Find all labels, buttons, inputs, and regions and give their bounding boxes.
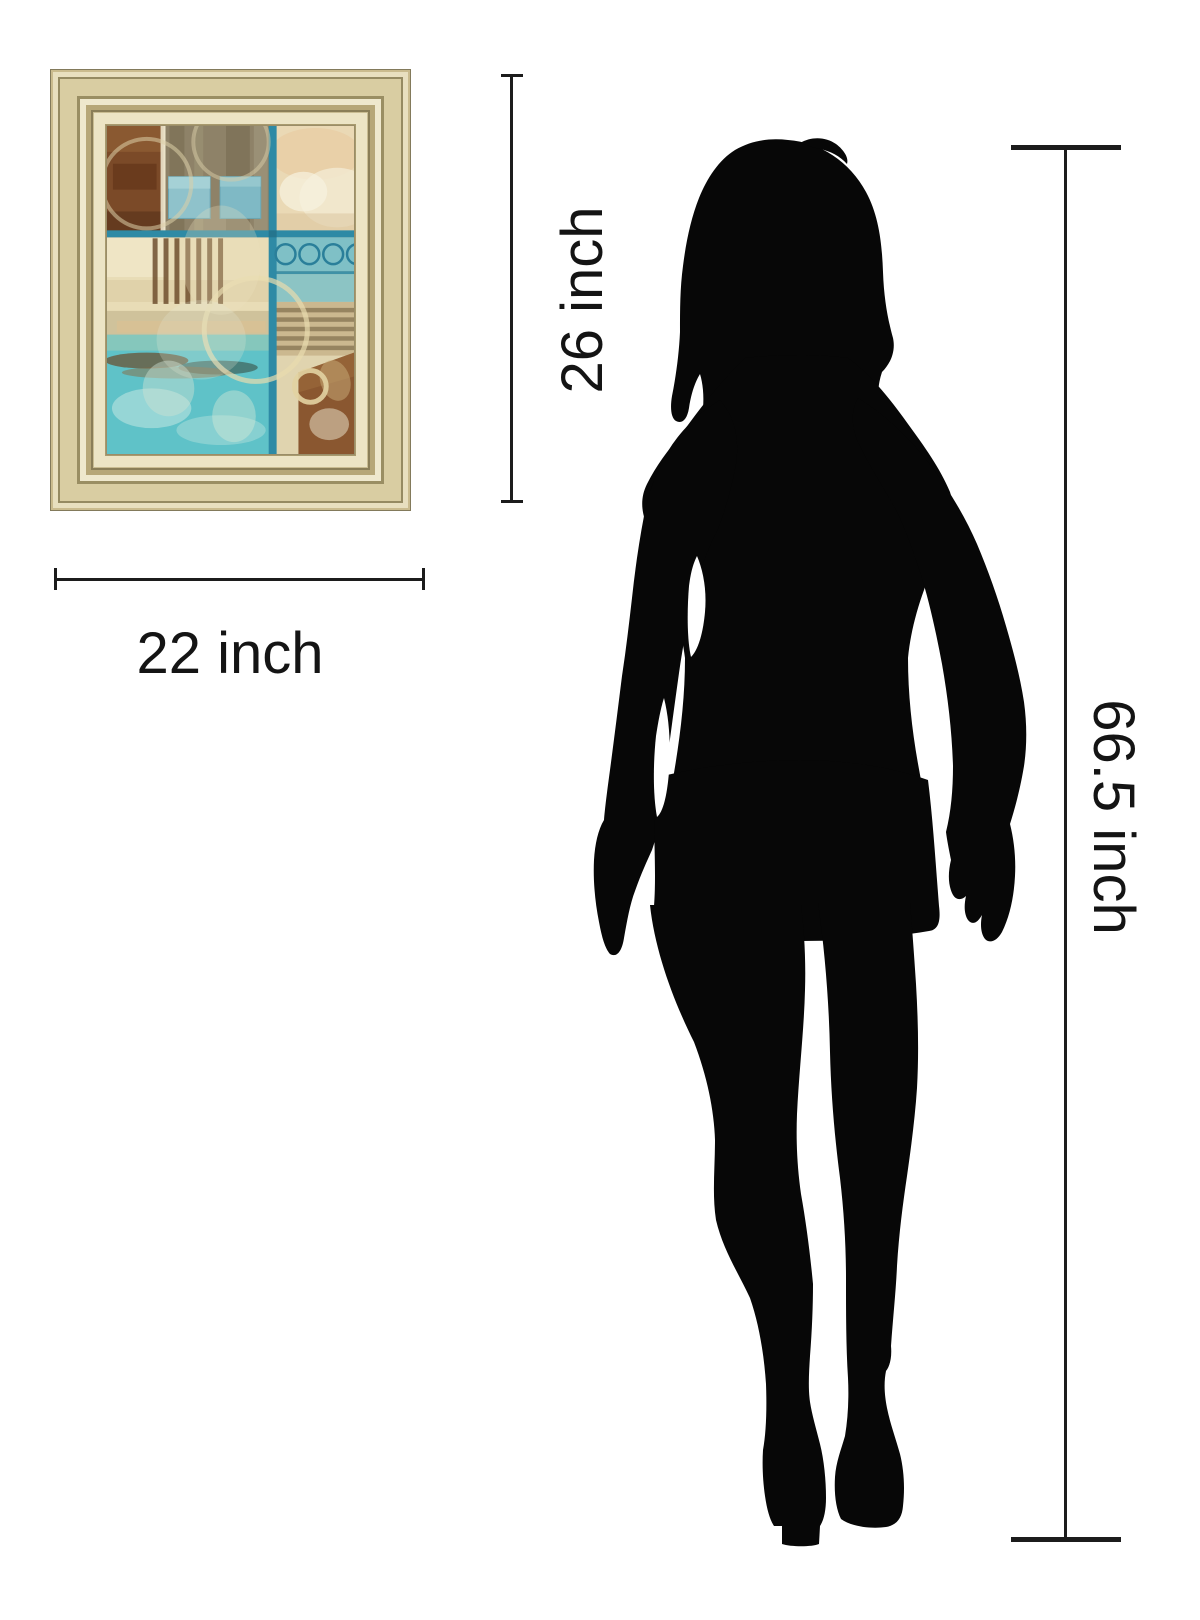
figure-height-cap-bottom — [1011, 1537, 1121, 1542]
silhouette-shapes — [594, 138, 1027, 1546]
size-comparison-diagram: 26 inch 22 inch — [0, 0, 1200, 1620]
figure-height-line — [1064, 147, 1067, 1540]
woman-silhouette — [0, 0, 1200, 1620]
figure-height-label: 66.5 inch — [1084, 699, 1142, 934]
figure-height-cap-top — [1011, 145, 1121, 150]
